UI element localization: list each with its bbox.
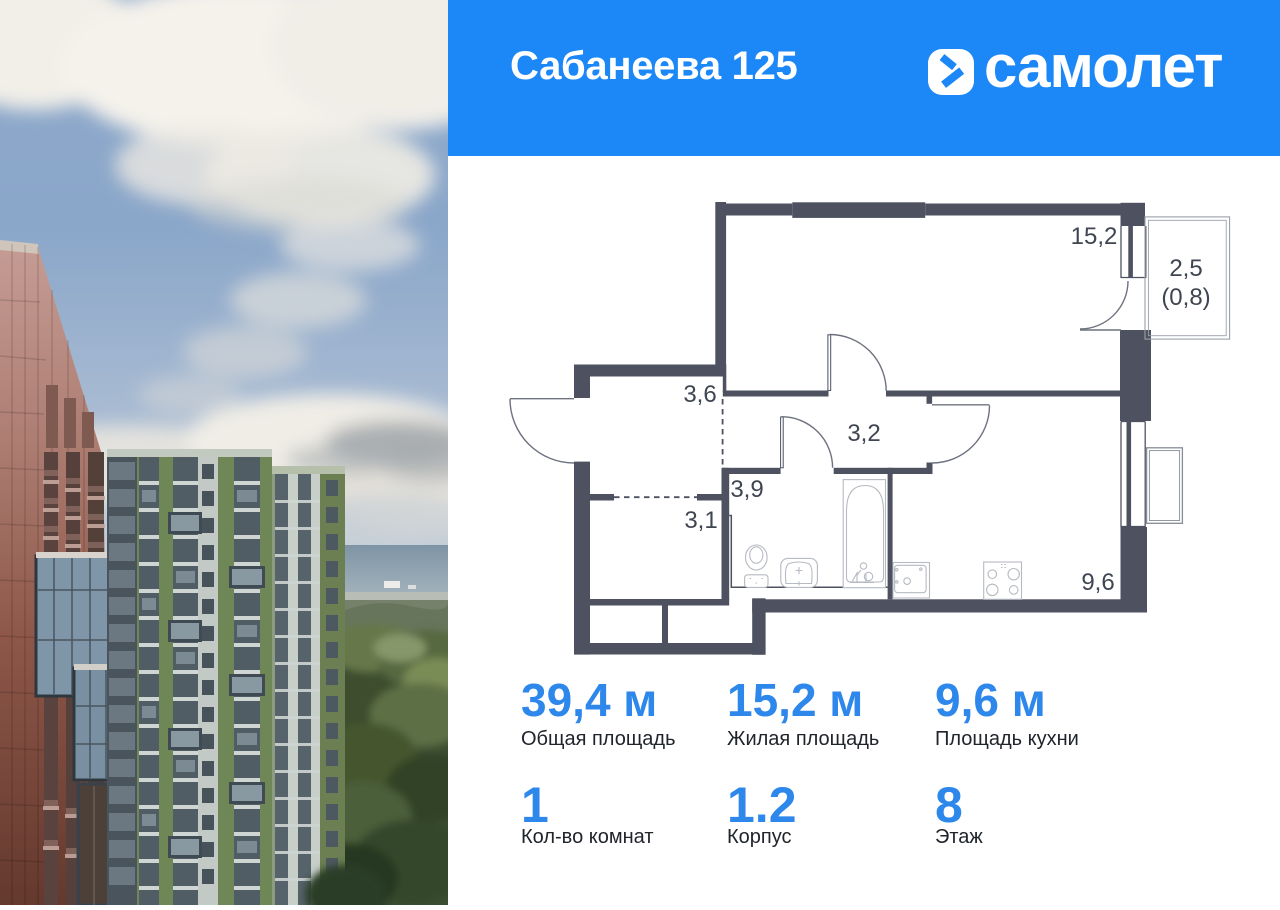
svg-text:3,1: 3,1 — [684, 507, 717, 534]
svg-text:3,2: 3,2 — [847, 420, 880, 447]
svg-text:3,9: 3,9 — [730, 476, 763, 503]
svg-text:(0,8): (0,8) — [1161, 284, 1210, 311]
svg-text:15,2: 15,2 — [1071, 223, 1118, 250]
svg-text:9,6: 9,6 — [1081, 569, 1114, 596]
svg-text:2,5: 2,5 — [1169, 255, 1202, 282]
svg-text:3,6: 3,6 — [683, 381, 716, 408]
